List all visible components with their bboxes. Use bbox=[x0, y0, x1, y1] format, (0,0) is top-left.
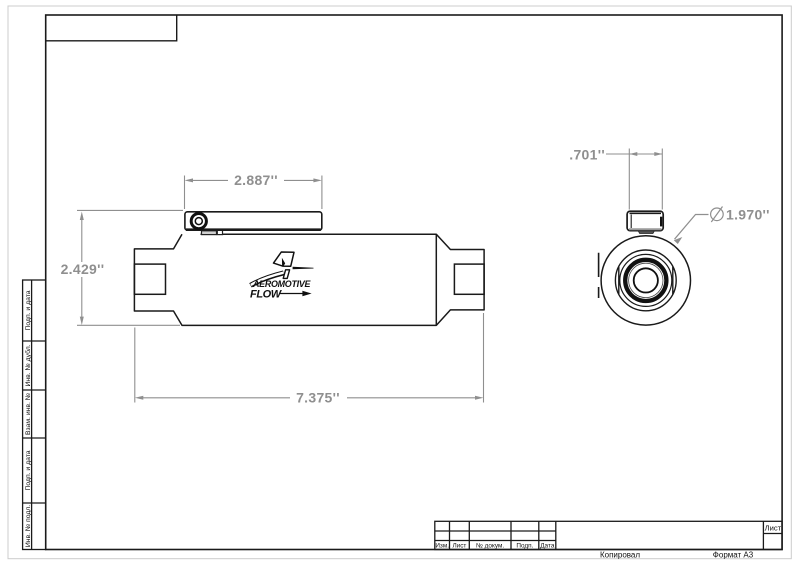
svg-text:Подп. и дата: Подп. и дата bbox=[25, 290, 32, 330]
svg-text:Взам. инв. №: Взам. инв. № bbox=[25, 393, 32, 435]
svg-text:7.375'': 7.375'' bbox=[296, 389, 340, 405]
svg-text:.701'': .701'' bbox=[569, 147, 605, 163]
svg-text:2.887'': 2.887'' bbox=[234, 172, 278, 188]
svg-text:Изм.: Изм. bbox=[435, 542, 449, 549]
svg-text:Подп. и дата: Подп. и дата bbox=[25, 450, 32, 490]
svg-text:Формат А3: Формат А3 bbox=[713, 551, 754, 560]
svg-text:№ докум.: № докум. bbox=[476, 542, 504, 549]
svg-text:Лист: Лист bbox=[765, 524, 782, 533]
svg-text:2.429'': 2.429'' bbox=[61, 261, 105, 277]
svg-text:FLOW: FLOW bbox=[250, 289, 283, 301]
svg-text:1.970'': 1.970'' bbox=[726, 206, 770, 222]
svg-text:Дата: Дата bbox=[540, 542, 555, 549]
svg-text:Копировал: Копировал bbox=[600, 551, 640, 560]
svg-text:Лист: Лист bbox=[452, 542, 466, 549]
svg-text:Инв. № дубл.: Инв. № дубл. bbox=[24, 344, 32, 386]
svg-text:Инв. № подл.: Инв. № подл. bbox=[25, 505, 32, 547]
svg-text:Подп.: Подп. bbox=[516, 542, 533, 549]
